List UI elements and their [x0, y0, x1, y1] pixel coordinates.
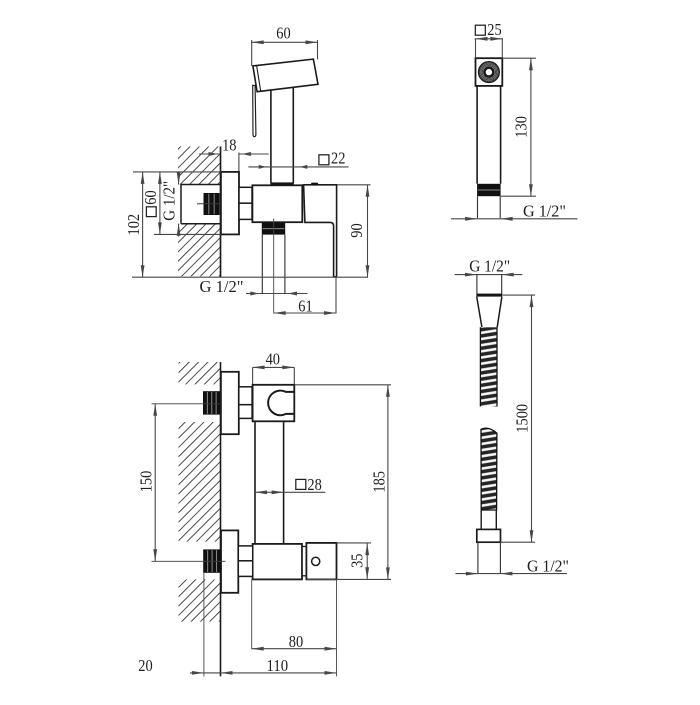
svg-text:28: 28	[307, 475, 321, 494]
svg-text:18: 18	[222, 136, 236, 155]
svg-text:130: 130	[511, 116, 530, 138]
svg-text:40: 40	[266, 349, 280, 368]
svg-text:G 1/2": G 1/2"	[469, 257, 510, 276]
svg-text:110: 110	[267, 656, 289, 675]
svg-text:G 1/2": G 1/2"	[160, 181, 179, 221]
svg-text:80: 80	[289, 632, 303, 651]
svg-text:185: 185	[370, 471, 389, 493]
svg-text:25: 25	[487, 20, 501, 39]
svg-text:61: 61	[298, 296, 312, 315]
svg-text:1500: 1500	[513, 404, 532, 433]
svg-text:22: 22	[331, 148, 345, 167]
svg-text:90: 90	[347, 223, 366, 237]
svg-text:102: 102	[124, 214, 143, 236]
svg-text:150: 150	[137, 471, 156, 493]
svg-text:35: 35	[348, 554, 367, 568]
svg-text:60: 60	[141, 190, 160, 204]
svg-text:G 1/2": G 1/2"	[523, 202, 566, 221]
svg-text:G 1/2": G 1/2"	[200, 277, 244, 296]
svg-text:G 1/2": G 1/2"	[527, 556, 569, 575]
svg-text:60: 60	[276, 24, 290, 43]
svg-text:20: 20	[138, 656, 152, 675]
